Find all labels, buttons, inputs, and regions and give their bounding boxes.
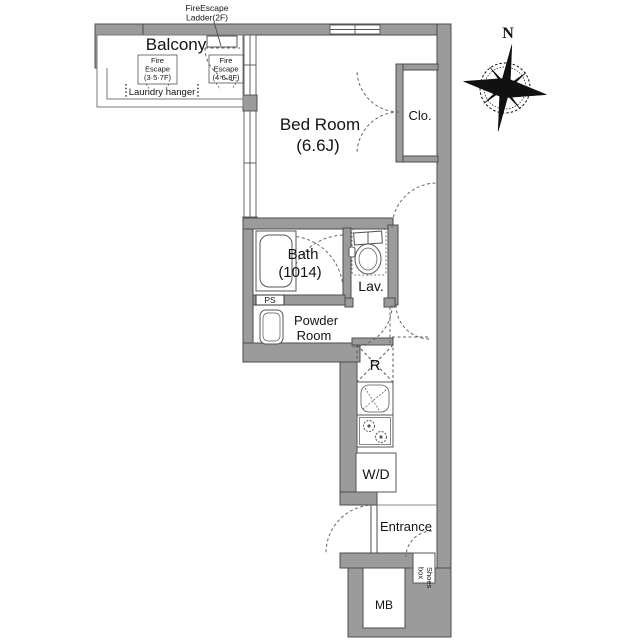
balcony-label: Balcony: [146, 35, 207, 54]
lavatory-label: Lav.: [358, 278, 383, 294]
wall-lav-door-post-right: [384, 298, 395, 307]
wall-bedroom-bottom: [243, 218, 393, 229]
bath-door-arc-1: [289, 235, 345, 291]
wall-lav-right: [388, 225, 398, 305]
powder-door-arc: [396, 305, 430, 339]
wall-closet-left: [396, 64, 403, 162]
floor-plan-drawing: N FireEscape Ladder(2F) Balcony Fire Esc…: [0, 0, 640, 640]
powder-sink: [260, 310, 283, 344]
fire-escape2-line3: (4·6·8F): [212, 73, 240, 82]
laundry-hanger-label: Laundry hanger: [129, 87, 196, 98]
powder-room-label-line2: Room: [297, 328, 332, 343]
bedroom-label: Bed Room: [280, 115, 360, 134]
toilet: [349, 229, 386, 275]
compass-rose: N: [457, 25, 554, 138]
wall-kitchen-top: [352, 338, 393, 345]
closet-label: Clo.: [408, 108, 431, 123]
meter-box-label: MB: [375, 598, 393, 612]
wall-powder-bottom: [243, 343, 360, 362]
stove-box: [357, 415, 393, 447]
bath-size-label: (1014): [278, 264, 321, 281]
powder-room-label-line1: Powder: [294, 313, 339, 328]
compass-north-label: N: [502, 25, 514, 42]
bedroom-size-label: (6.6J): [296, 136, 339, 155]
kitchen-sink-box: [357, 382, 393, 415]
entrance-label: Entrance: [380, 519, 432, 534]
wall-entrance-top-stub: [340, 492, 377, 505]
ladder-label-line2: Ladder(2F): [186, 13, 228, 23]
wall-top: [95, 24, 451, 35]
bath-label: Bath: [288, 246, 319, 263]
bedroom-door-arc: [392, 183, 437, 228]
pipe-shaft-label: PS: [264, 295, 276, 305]
ladder-label-line1: FireEscape: [186, 3, 229, 13]
wall-left-bath-section: [243, 229, 253, 345]
wall-entrance-bottom: [340, 553, 413, 568]
fire-escape-hatch: [207, 36, 237, 47]
wall-bath-lav-partition: [343, 228, 351, 298]
washer-dryer-label: W/D: [362, 466, 389, 482]
entrance-door-arc: [326, 505, 374, 553]
kitchen-sink-basin: [361, 385, 389, 412]
kitchen-sink-marks: [363, 388, 387, 410]
closet-door-arc-top: [357, 70, 399, 112]
floor-plan-canvas: N FireEscape Ladder(2F) Balcony Fire Esc…: [0, 0, 640, 640]
wall-corridor-left: [340, 362, 357, 505]
closet-door-arc-bottom: [357, 112, 399, 154]
wall-right: [437, 24, 451, 637]
wall-window-pier-upper: [243, 95, 257, 111]
fire-escape1-line3: (3·5·7F): [144, 73, 172, 82]
entrance-door-leaf: [371, 505, 377, 553]
refrigerator-label: R: [370, 357, 381, 374]
wall-lav-door-post-left: [345, 298, 353, 307]
shoes-box-label-line2: box: [417, 567, 426, 579]
